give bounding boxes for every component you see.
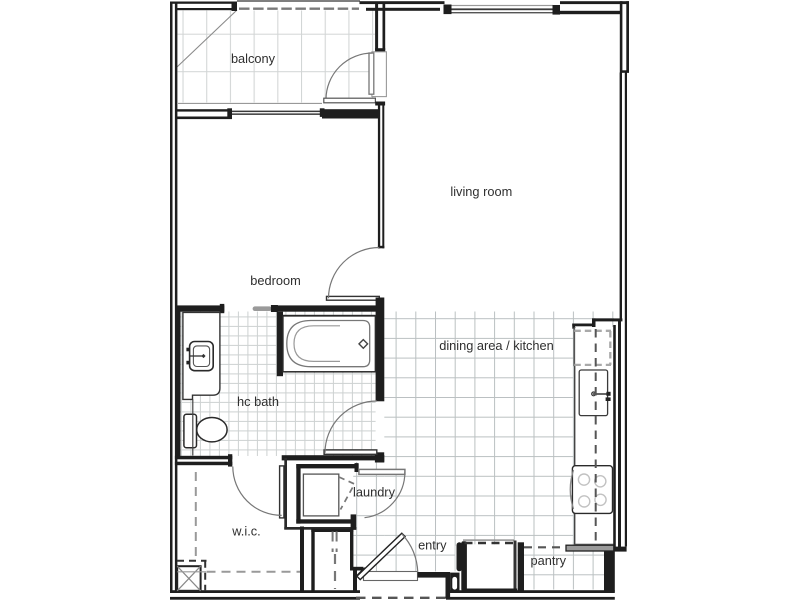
svg-text:dining area / kitchen: dining area / kitchen [439, 338, 554, 353]
svg-text:pantry: pantry [531, 553, 567, 568]
svg-text:entry: entry [418, 538, 447, 553]
svg-text:hc bath: hc bath [237, 394, 279, 409]
svg-text:living room: living room [450, 184, 512, 199]
svg-text:laundry: laundry [353, 485, 396, 500]
svg-text:balcony: balcony [231, 51, 276, 66]
svg-text:bedroom: bedroom [250, 273, 301, 288]
svg-text:w.i.c.: w.i.c. [231, 524, 260, 539]
